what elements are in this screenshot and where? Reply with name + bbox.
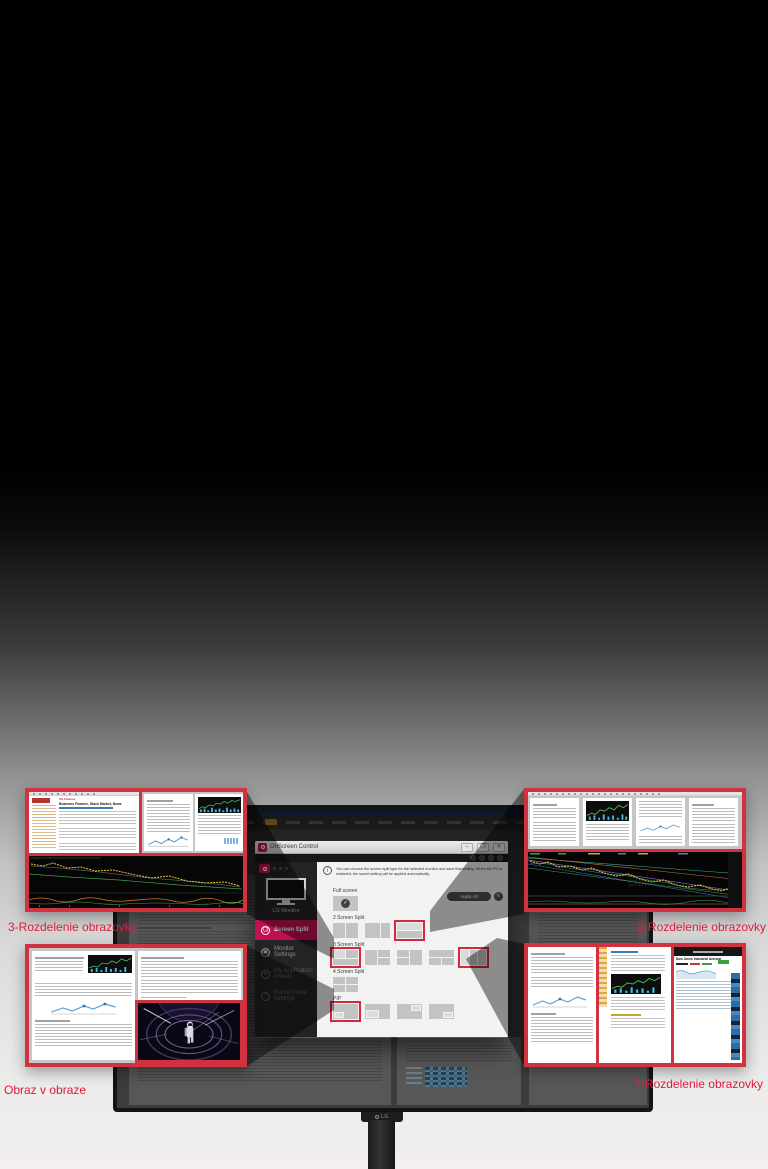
layout-tile-2split-b[interactable]	[365, 923, 390, 938]
screen-split-icon: ❏	[261, 926, 270, 935]
blue-line-chart	[147, 834, 190, 848]
sidebar-item-game-mode-settings[interactable]: ⌃ Game mode settings	[255, 986, 317, 1006]
green-badge	[718, 960, 729, 964]
product-feature-image: OnScreen Control – ❐ ✕	[0, 0, 768, 1169]
layout-tile-pip-d[interactable]	[429, 1004, 454, 1019]
sidebar-dot-icon	[279, 867, 282, 870]
blue-line-chart	[49, 1000, 119, 1016]
document-pane	[528, 947, 596, 1063]
stock-chart-dark	[88, 955, 132, 973]
trading-chart-descending	[29, 856, 243, 908]
layout-tile-4split[interactable]	[333, 977, 358, 992]
document-spread-pane	[142, 792, 243, 853]
trading-chart-pane	[29, 856, 243, 908]
label-3-split-top-left: 3-Rozdelenie obrazovky	[8, 920, 137, 934]
section-label-4-screen-split: 4 Screen Split	[333, 969, 486, 975]
yellow-heading	[611, 1014, 641, 1016]
dimmed-document-center	[397, 1037, 521, 1105]
window-title: OnScreen Control	[270, 844, 457, 850]
layout-tile-3split-c[interactable]	[397, 950, 422, 965]
pip-inset	[135, 1000, 243, 1063]
close-button[interactable]: ✕	[493, 843, 505, 852]
trading-chart-pane: CNX	[528, 852, 742, 908]
chart-watermark: CNX	[628, 878, 647, 888]
label-picture-in-picture: Obraz v obraze	[4, 1083, 86, 1097]
layout-tile-3split-d[interactable]	[429, 950, 454, 965]
help-icon[interactable]	[488, 855, 494, 861]
selected-layout-highlight	[394, 920, 425, 941]
document-spread-pane	[29, 948, 243, 1063]
label-3-split-bottom-right: 3-Rozdelenie obrazovky	[634, 1077, 763, 1091]
blue-line-chart	[639, 822, 682, 834]
volume-icon[interactable]	[479, 855, 485, 861]
selected-layout-highlight	[330, 1001, 361, 1022]
news-kicker: US Finance	[59, 798, 136, 802]
highlight-sidebar	[599, 947, 607, 1007]
document-chart-pane	[599, 947, 671, 1063]
lg-logo-badge	[259, 864, 270, 873]
browser-logo	[265, 819, 277, 825]
layout-tile-3split-e[interactable]	[461, 950, 486, 965]
four-documents-pane	[528, 792, 742, 849]
stock-chart-dark	[611, 974, 661, 994]
layout-tile-2split-a[interactable]	[333, 923, 358, 938]
monitor-illustration	[266, 878, 306, 900]
astronaut-image	[138, 1003, 240, 1060]
website-sidebar-modules	[731, 973, 740, 1060]
news-logo	[32, 798, 50, 803]
app-icon	[258, 843, 267, 852]
layout-tile-pip-c[interactable]	[397, 1004, 422, 1019]
trading-chart-multi-line: CNX	[528, 852, 742, 908]
maximize-button[interactable]: ❐	[477, 843, 489, 852]
label-2-split-top-right: 2-Rozdelenie obrazovky	[637, 920, 766, 934]
layout-tile-3split-b[interactable]	[365, 950, 390, 965]
monitor-settings-icon: ▣	[261, 948, 270, 957]
application-preset-icon: ✦	[261, 970, 270, 979]
minimize-button[interactable]: –	[461, 843, 473, 852]
layout-tile-full-screen[interactable]: ✓	[333, 896, 358, 911]
osc-sidebar: LG Monitor ❏ Screen Split ▣ Monitor Sett…	[255, 862, 317, 1037]
website-title: Dow Jones Industrial Average	[676, 958, 740, 962]
info-icon: i	[323, 866, 332, 875]
device-icon[interactable]	[470, 855, 476, 861]
blue-line-chart	[531, 993, 589, 1009]
screen-split-description: You can choose the screen split type for…	[336, 866, 504, 876]
window-toolbar	[255, 854, 508, 862]
layout-tile-pip-a[interactable]	[333, 1004, 358, 1019]
check-icon: ✓	[341, 899, 350, 908]
website-header	[674, 947, 742, 956]
onscreen-control-window: OnScreen Control – ❐ ✕	[255, 841, 508, 1038]
window-titlebar[interactable]: OnScreen Control – ❐ ✕	[255, 841, 508, 854]
monitor-name-label: LG Monitor	[255, 908, 317, 914]
finance-website-pane: Dow Jones Industrial Average	[674, 947, 742, 1063]
news-link	[59, 807, 113, 809]
osc-main-panel: i You can choose the screen split type f…	[317, 862, 508, 1037]
news-sidebar	[32, 798, 56, 851]
monitor-stand	[368, 1120, 395, 1169]
settings-icon[interactable]	[497, 855, 503, 861]
selected-layout-highlight	[330, 947, 361, 968]
selected-layout-highlight	[458, 947, 489, 968]
refresh-button[interactable]: ↻	[494, 892, 503, 901]
thumbnail-pip-left	[25, 944, 247, 1067]
monitor-illustration-base	[277, 903, 295, 905]
sidebar-item-screen-split[interactable]: ❏ Screen Split	[255, 920, 317, 940]
sidebar-item-monitor-settings[interactable]: ▣ Monitor Settings	[255, 942, 317, 962]
stock-chart-dark	[586, 801, 629, 821]
sidebar-dot-icon	[273, 867, 276, 870]
thumbnail-3-split-left: US Finance Business Finance, Stock Marke…	[25, 788, 247, 912]
section-label-full-screen: Full screen	[333, 888, 486, 894]
chevron-up-icon: ⌃	[261, 992, 270, 1001]
sidebar-item-my-application-preset[interactable]: ✦ My Application Preset	[255, 964, 317, 984]
layout-tile-3split-a[interactable]	[333, 950, 358, 965]
layout-tile-pip-b[interactable]	[365, 1004, 390, 1019]
layout-tile-2split-c[interactable]	[397, 923, 422, 938]
index-area-chart	[676, 966, 716, 979]
stock-chart-dark	[198, 797, 241, 813]
documents-toolbar	[528, 792, 742, 796]
website-logo	[693, 951, 723, 953]
thumbnail-2-split-right: CNX	[524, 788, 746, 912]
sidebar-dot-icon	[285, 867, 288, 870]
news-title: Business Finance, Stock Market, News	[59, 803, 136, 807]
dimmed-data-table	[406, 1067, 512, 1087]
thumbnail-3-split-right: Dow Jones Industrial Average	[524, 943, 746, 1067]
news-document-pane: US Finance Business Finance, Stock Marke…	[29, 792, 139, 853]
lg-logo-icon	[375, 1115, 379, 1119]
